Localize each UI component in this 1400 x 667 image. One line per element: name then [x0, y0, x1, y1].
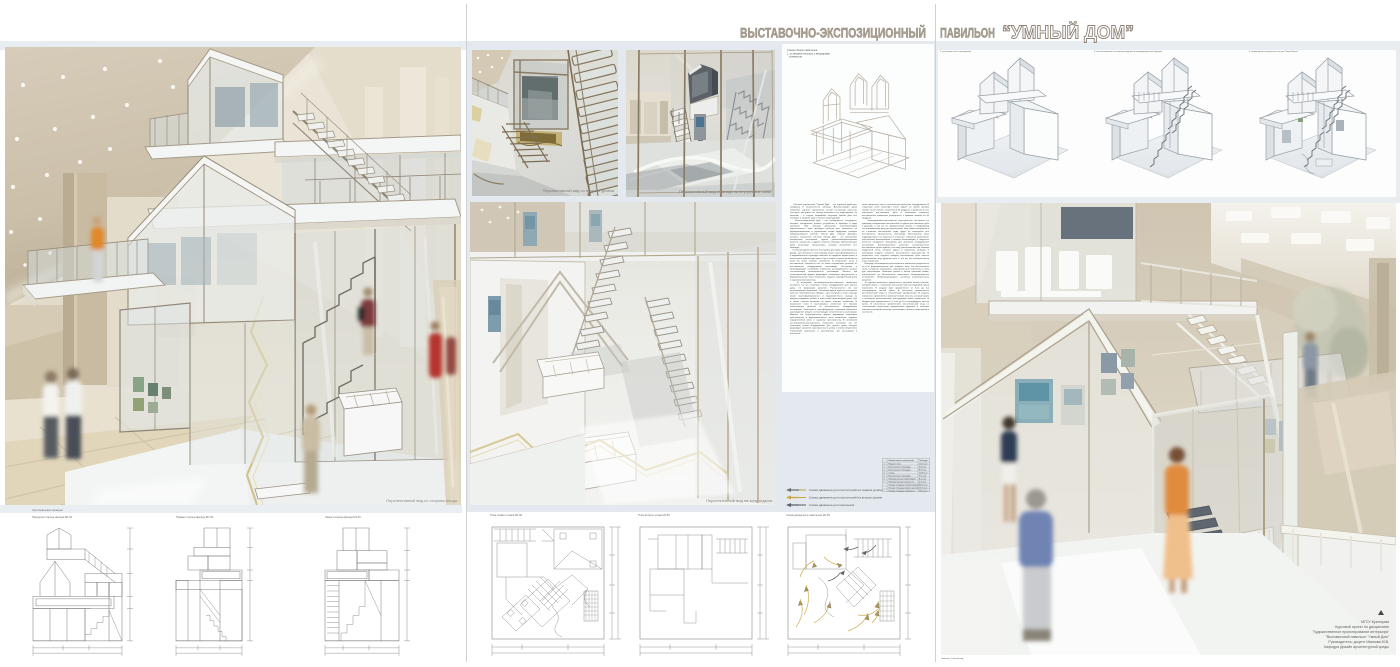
svg-text:Перспективный вид со стороны в: Перспективный вид со стороны входа — [386, 498, 458, 503]
svg-text:Выставочная площадка: Выставочная площадка — [889, 475, 912, 477]
svg-text:9,8 м.кв: 9,8 м.кв — [919, 466, 926, 468]
svg-text:"Выставочный павильон "Умный Д: "Выставочный павильон "Умный Дом" — [1326, 635, 1390, 639]
svg-text:Перспективный вид от входа на: Перспективный вид от входа на внутренние… — [679, 189, 771, 194]
svg-text:Кафедра Дизайн архитектурной с: Кафедра Дизайн архитектурной среды — [1324, 645, 1389, 649]
svg-text:Площадь: Площадь — [919, 460, 928, 462]
svg-text:Наименование помещений: Наименование помещений — [889, 459, 914, 462]
svg-text:Курсовой проект по дисциплине: Курсовой проект по дисциплине — [1335, 625, 1389, 629]
svg-text:“УМНЫЙ ДОМ”: “УМНЫЙ ДОМ” — [1002, 22, 1134, 43]
svg-text:Схема движения для посетителей: Схема движения для посетителей на втором… — [809, 496, 883, 500]
svg-text:Входная зона: Входная зона — [889, 463, 902, 465]
svg-text:Схема движения для посетителей: Схема движения для посетителей на первом… — [809, 488, 883, 492]
svg-text:Руководитель: доцент Иванова М: Руководитель: доцент Иванова М.В. — [1328, 640, 1389, 644]
svg-text:9,6 м.кв: 9,6 м.кв — [919, 475, 926, 477]
svg-text:Помещение для персонала: Помещение для персонала — [889, 481, 915, 483]
svg-text:Схема движения для персонала: Схема движения для персонала — [809, 503, 855, 507]
svg-text:"Художественное проектирование: "Художественное проектирование интерьера… — [1312, 630, 1390, 634]
svg-text:Помещение для переговоров: Помещение для переговоров — [889, 478, 916, 480]
svg-text:15,6 м.кв: 15,6 м.кв — [919, 463, 927, 465]
svg-text:МГСУ Кузнецова: МГСУ Кузнецова — [1361, 620, 1389, 624]
svg-text:8,4 м.кв: 8,4 м.кв — [919, 478, 926, 480]
svg-text:10,8 м.кв: 10,8 м.кв — [919, 472, 927, 474]
svg-text:Склад: Склад — [889, 472, 896, 474]
svg-text:ПАВИЛЬОН: ПАВИЛЬОН — [940, 26, 995, 41]
svg-text:ВЫСТАВОЧНО-ЭКСПОЗИЦИОННЫЙ: ВЫСТАВОЧНО-ЭКСПОЗИЦИОННЫЙ — [740, 26, 926, 41]
svg-text:Перспективный вид со второго у: Перспективный вид со второго уровня — [543, 188, 614, 193]
svg-text:Выставочная площадка: Выставочная площадка — [889, 469, 912, 471]
svg-text:Выставочная площадка: Выставочная площадка — [889, 466, 912, 468]
svg-text:8,9 м.кв: 8,9 м.кв — [919, 469, 926, 471]
svg-text:Перспективный вид на зону отды: Перспективный вид на зону отдыха — [706, 498, 773, 503]
svg-text:5,6 м.кв: 5,6 м.кв — [919, 481, 926, 483]
